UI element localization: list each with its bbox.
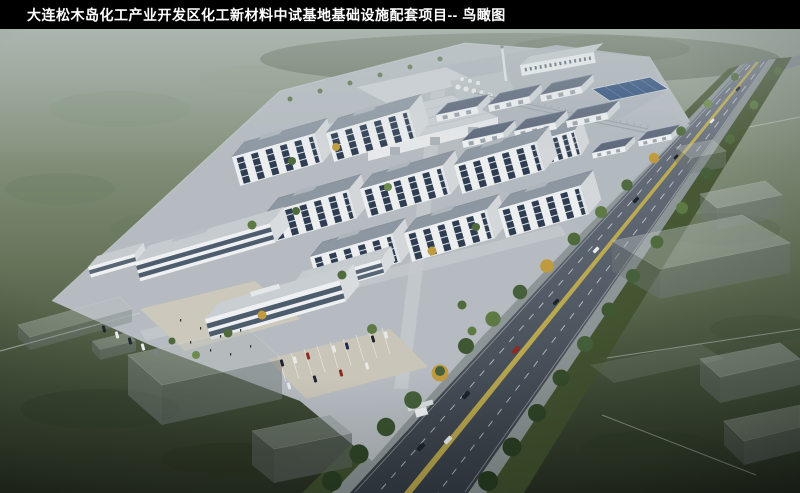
vignette-overlay bbox=[0, 29, 800, 493]
rendering-frame: 大连松木岛化工产业开发区化工新材料中试基地基础设施配套项目-- 鸟瞰图 bbox=[0, 0, 800, 493]
project-title: 大连松木岛化工产业开发区化工新材料中试基地基础设施配套项目-- 鸟瞰图 bbox=[0, 5, 506, 25]
title-bar: 大连松木岛化工产业开发区化工新材料中试基地基础设施配套项目-- 鸟瞰图 bbox=[0, 0, 800, 29]
aerial-rendering bbox=[0, 29, 800, 493]
